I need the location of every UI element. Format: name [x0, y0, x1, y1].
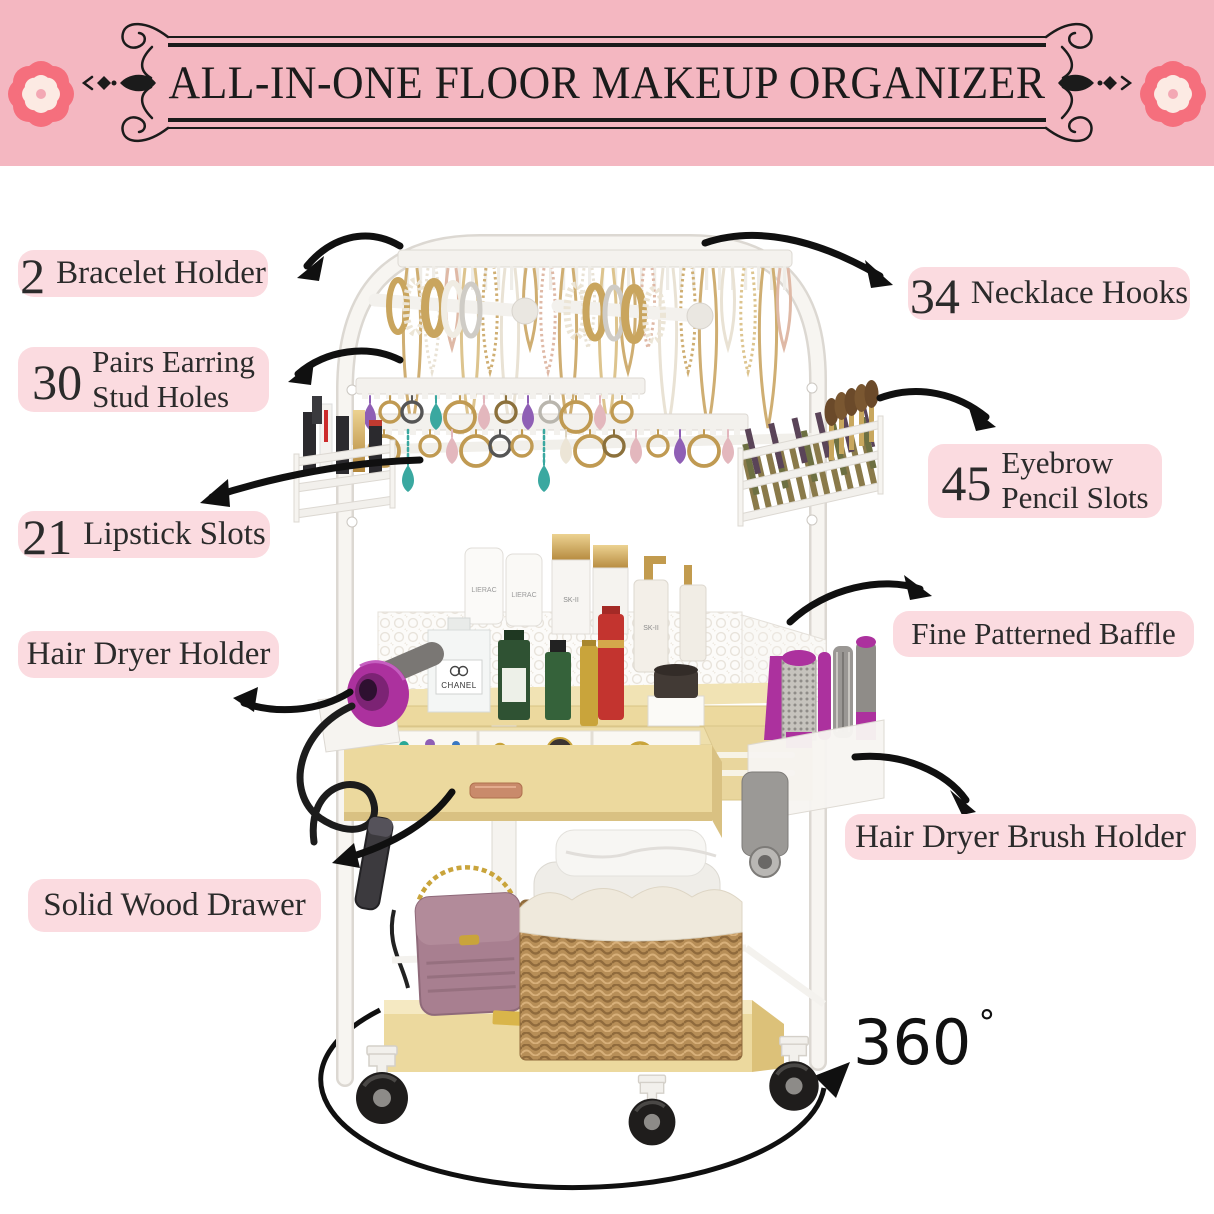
bracelet-text: Bracelet Holder [56, 255, 266, 292]
hair-dryer-brush-holder-text: Hair Dryer Brush Holder [855, 819, 1186, 856]
eyebrow-text-line2: Pencil Slots [1001, 481, 1148, 516]
serum-brand-text: SK-II [563, 597, 579, 604]
chanel-perfume: CHANEL [428, 618, 490, 712]
label-fine-patterned-baffle: Fine Patterned Baffle [893, 611, 1194, 657]
perfume-brand-text: CHANEL [441, 681, 477, 690]
label-hair-dryer-brush-holder: Hair Dryer Brush Holder [845, 814, 1196, 860]
fine-patterned-baffle-text: Fine Patterned Baffle [911, 616, 1176, 652]
earring-count: 30 [32, 357, 82, 407]
label-eyebrow-pencil-slots: 45 Eyebrow Pencil Slots [928, 444, 1162, 518]
degree-symbol: ° [978, 1006, 995, 1068]
label-bracelet-holder: 2 Bracelet Holder [18, 250, 268, 297]
tube-brand-text-2: LIERAC [511, 592, 536, 599]
label-hair-dryer-holder: Hair Dryer Holder [18, 631, 279, 678]
arrow-eyebrow [880, 392, 986, 417]
handbag [413, 865, 525, 1032]
solid-wood-drawer-text: Solid Wood Drawer [43, 887, 306, 924]
rotation-value: 360 [853, 1012, 971, 1074]
earring-text-line2: Stud Holes [92, 380, 255, 415]
label-lipstick-slots: 21 Lipstick Slots [18, 511, 270, 558]
tube-brand-text: LIERAC [471, 587, 496, 594]
lipstick-count: 21 [22, 512, 72, 562]
earring-text-line1: Pairs Earring [92, 345, 255, 380]
organizer-illustration: LIERAC LIERAC SK-II SK-II [0, 0, 1214, 1214]
wicker-basket [520, 830, 742, 1060]
cosmetics: LIERAC LIERAC SK-II SK-II [428, 534, 706, 726]
necklace-count: 34 [910, 271, 960, 321]
eyebrow-text-line1: Eyebrow [1001, 446, 1148, 481]
eyebrow-count: 45 [941, 458, 991, 508]
label-solid-wood-drawer: Solid Wood Drawer [28, 879, 321, 932]
serum-brand-text-2: SK-II [643, 625, 659, 632]
rotation-badge: 360 ° [853, 1012, 995, 1074]
bracelet-count: 2 [20, 251, 45, 301]
drawer-handle [470, 783, 522, 798]
label-necklace-hooks: 34 Necklace Hooks [908, 267, 1190, 320]
label-earring-stud-holes: 30 Pairs Earring Stud Holes [18, 347, 269, 412]
hair-dryer-holder-text: Hair Dryer Holder [27, 636, 271, 673]
necklace-text: Necklace Hooks [971, 275, 1188, 312]
lipstick-text: Lipstick Slots [83, 516, 265, 553]
infographic: ALL-IN-ONE FLOOR MAKEUP ORGANIZER [0, 0, 1214, 1214]
